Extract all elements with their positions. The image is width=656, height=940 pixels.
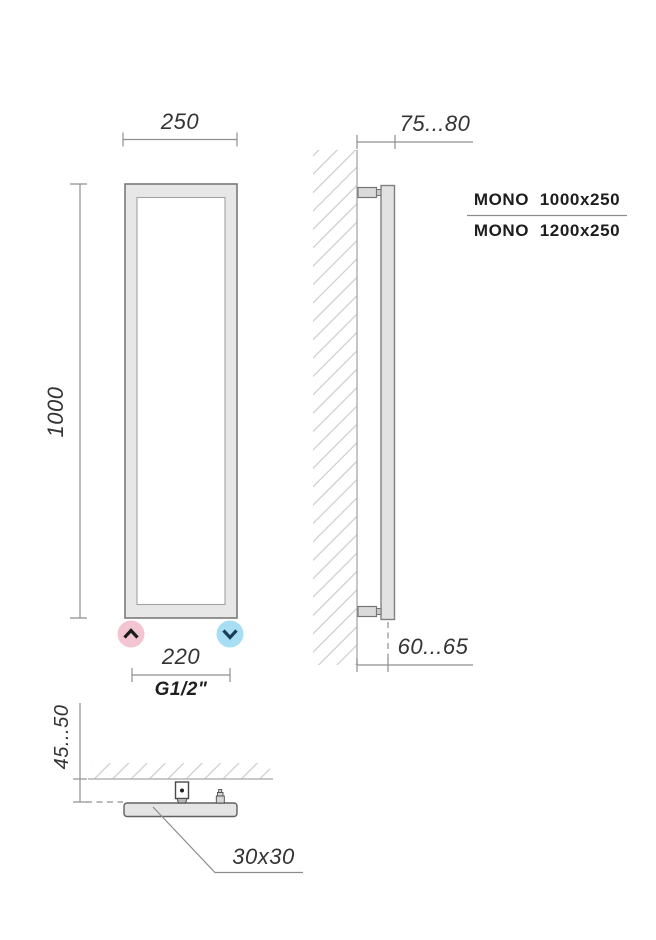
wall-hatch-section bbox=[92, 763, 270, 779]
radiator-profile-side bbox=[381, 186, 395, 620]
wall-hatch bbox=[313, 150, 357, 665]
side-view bbox=[313, 135, 473, 672]
technical-drawing: 250 1000 220 G1/2" 75...80 60...65 MONO … bbox=[0, 0, 656, 940]
chevron-up-icon bbox=[118, 621, 145, 648]
dimension-width-lines bbox=[123, 133, 237, 147]
model-name-first: MONO 1000x250 bbox=[462, 191, 632, 210]
chevron-down-icon bbox=[217, 621, 244, 648]
profile-size-label: 30x30 bbox=[216, 845, 311, 868]
dim-pipe-spacing: 220 bbox=[132, 645, 230, 668]
wall-bracket-section bbox=[176, 782, 189, 803]
radiator-profile-section bbox=[124, 803, 237, 817]
dim-wall-clearance: 45...50 bbox=[52, 695, 78, 779]
dim-height: 1000 bbox=[44, 372, 70, 452]
model-name-second: MONO 1200x250 bbox=[462, 222, 632, 241]
radiator-frame-inner bbox=[137, 198, 225, 605]
dim-wall-offset-top: 75...80 bbox=[393, 112, 477, 135]
drawing-linework bbox=[0, 0, 656, 940]
mounting-bracket-top bbox=[358, 188, 381, 198]
dim-wall-offset-axis: 60...65 bbox=[391, 635, 475, 658]
dimension-wall-offset-axis-lines bbox=[357, 658, 473, 672]
air-valve bbox=[216, 790, 224, 804]
dimension-wall-offset-top-lines bbox=[357, 135, 473, 149]
dimension-height-lines bbox=[70, 184, 87, 618]
thread-size-label: G1/2" bbox=[125, 679, 237, 701]
mounting-bracket-bottom bbox=[358, 607, 381, 617]
front-view bbox=[70, 133, 244, 683]
dim-width: 250 bbox=[123, 110, 237, 133]
